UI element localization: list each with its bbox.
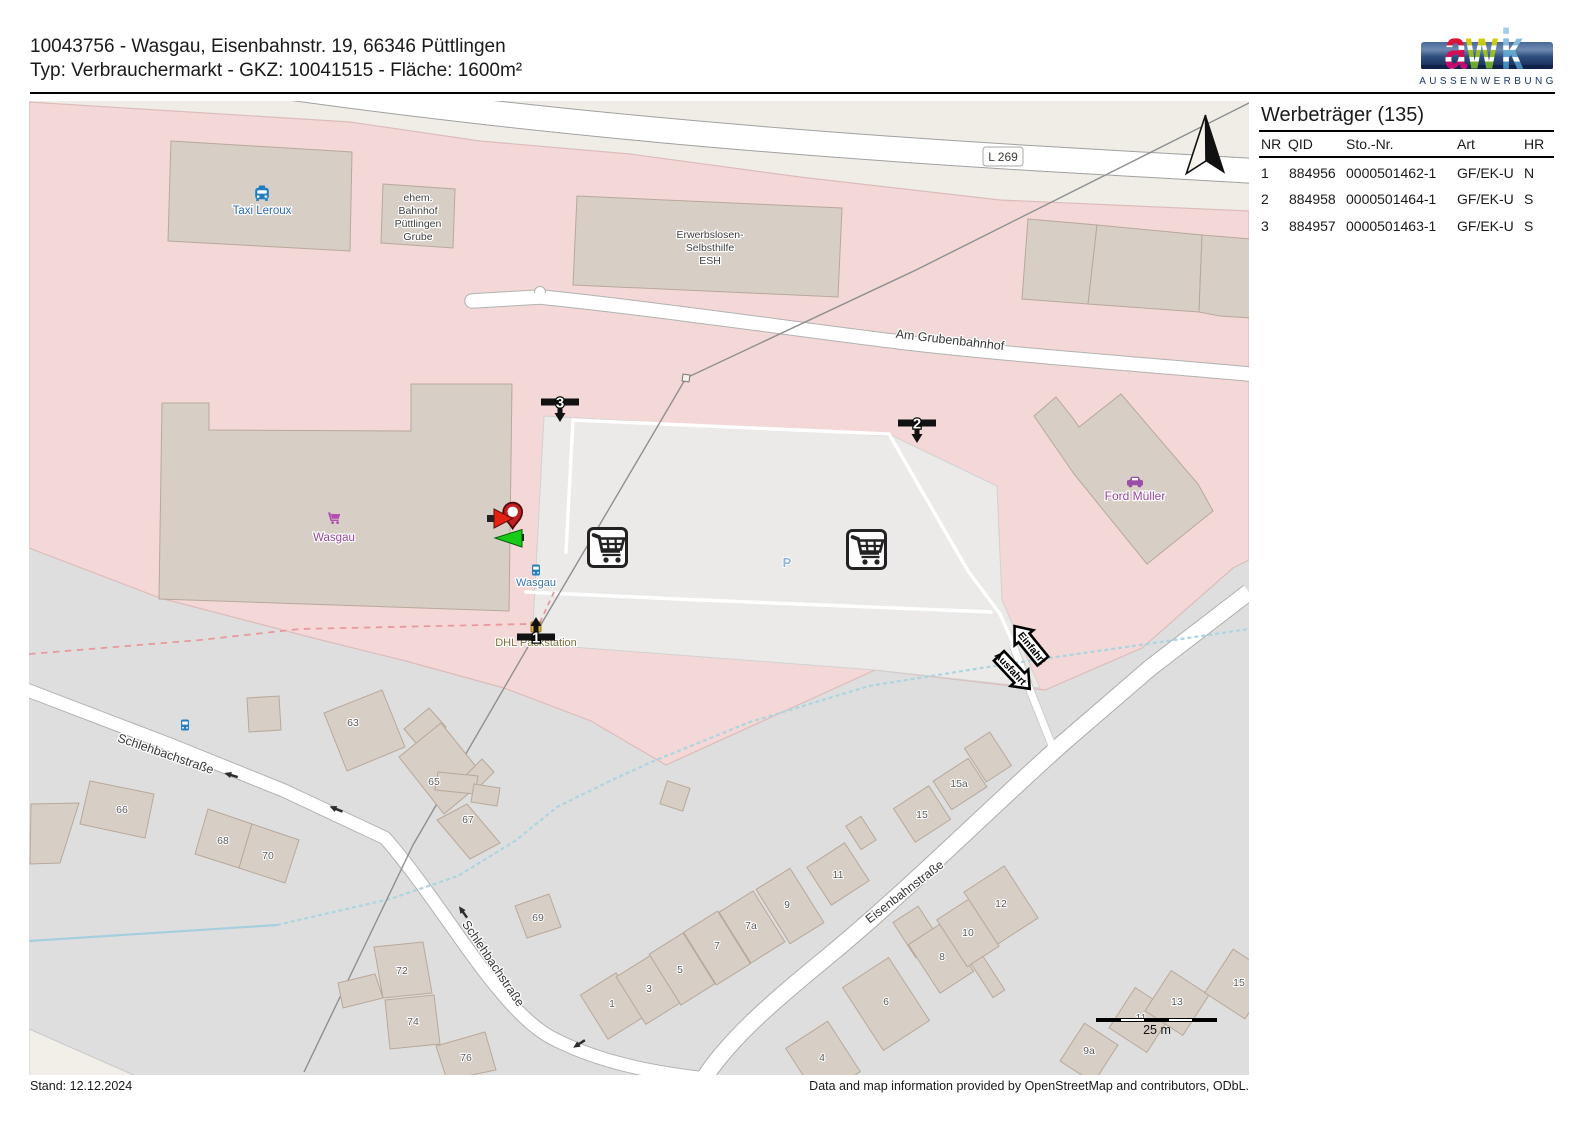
svg-text:Taxi Leroux: Taxi Leroux xyxy=(233,205,292,217)
svg-text:3: 3 xyxy=(556,395,564,412)
svg-text:66: 66 xyxy=(116,804,128,816)
svg-text:1: 1 xyxy=(609,998,615,1010)
svg-text:P: P xyxy=(783,555,792,570)
svg-text:8: 8 xyxy=(939,951,945,963)
svg-text:1: 1 xyxy=(532,630,540,647)
svg-text:7a: 7a xyxy=(745,920,757,932)
svg-text:10: 10 xyxy=(962,927,974,939)
svg-text:9: 9 xyxy=(784,899,790,911)
svg-text:Grube: Grube xyxy=(403,231,432,243)
svg-text:AUSSENWERBUNG: AUSSENWERBUNG xyxy=(1419,76,1557,87)
svg-text:15: 15 xyxy=(1233,977,1245,989)
svg-text:67: 67 xyxy=(462,814,474,826)
svg-text:72: 72 xyxy=(396,965,408,977)
svg-text:63: 63 xyxy=(347,717,359,729)
svg-text:3: 3 xyxy=(646,983,652,995)
svg-text:25 m: 25 m xyxy=(1143,1023,1171,1037)
svg-text:k: k xyxy=(1500,18,1523,81)
svg-text:69: 69 xyxy=(532,912,544,924)
svg-text:7: 7 xyxy=(714,940,720,952)
svg-text:L 269: L 269 xyxy=(988,150,1018,164)
svg-text:6: 6 xyxy=(883,996,889,1008)
svg-text:Püttlingen: Püttlingen xyxy=(395,218,442,230)
svg-text:65: 65 xyxy=(428,776,440,788)
svg-text:68: 68 xyxy=(217,835,229,847)
svg-text:15: 15 xyxy=(916,809,928,821)
svg-text:70: 70 xyxy=(262,850,274,862)
svg-text:Selbsthilfe: Selbsthilfe xyxy=(686,242,735,254)
svg-text:74: 74 xyxy=(407,1016,419,1028)
svg-text:4: 4 xyxy=(819,1052,825,1064)
svg-text:w: w xyxy=(1465,18,1498,81)
svg-text:11: 11 xyxy=(833,869,844,881)
svg-text:9a: 9a xyxy=(1083,1045,1095,1057)
svg-text:13: 13 xyxy=(1171,996,1183,1008)
svg-text:Bahnhof: Bahnhof xyxy=(398,205,437,217)
svg-text:Erwerbslosen-: Erwerbslosen- xyxy=(676,229,744,241)
svg-text:Ford Müller: Ford Müller xyxy=(1105,489,1166,503)
svg-text:ESH: ESH xyxy=(699,255,721,267)
svg-text:2: 2 xyxy=(913,416,921,433)
svg-text:ehem.: ehem. xyxy=(403,192,432,204)
svg-text:5: 5 xyxy=(677,964,683,976)
svg-text:Wasgau: Wasgau xyxy=(313,532,355,544)
svg-text:15a: 15a xyxy=(950,778,968,790)
svg-text:76: 76 xyxy=(460,1052,472,1064)
svg-text:Wasgau: Wasgau xyxy=(516,577,556,589)
svg-text:12: 12 xyxy=(995,898,1007,910)
svg-text:a: a xyxy=(1444,18,1467,81)
